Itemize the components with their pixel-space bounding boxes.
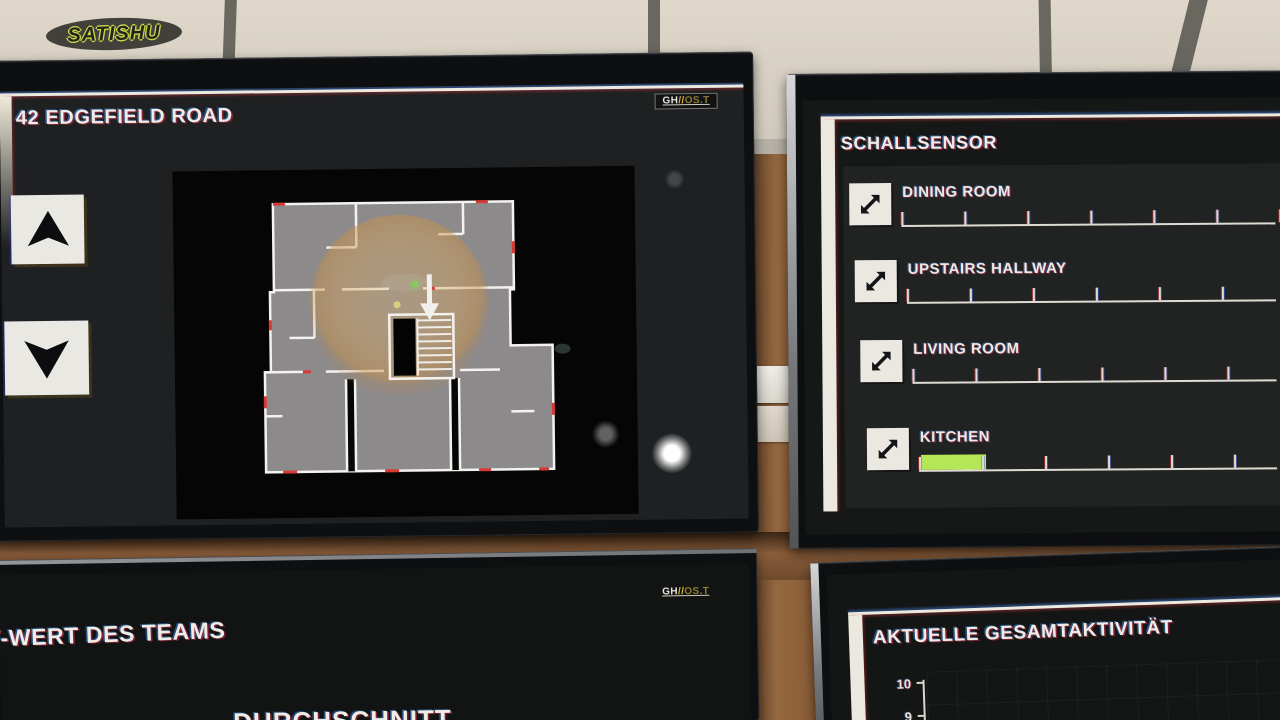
ghost-os-brand-badge: GH//OS.T (654, 93, 717, 110)
diagonal-expand-arrow-icon (861, 266, 891, 296)
light-reflection (652, 433, 692, 473)
sensor-row-dining: DINING ROOM (849, 180, 1275, 231)
ghost-os-brand-badge: GH//OS.T (662, 586, 709, 598)
activity-monitor: AKTUELLE GESAMTAKTIVITÄT 10 9 (810, 546, 1280, 720)
y-axis-tick-mark (918, 715, 925, 717)
chart-grid (926, 659, 1280, 720)
y-axis-tick-mark (917, 682, 924, 684)
sensor-room-label: KITCHEN (920, 428, 990, 445)
team-value-title: Y-WERT DES TEAMS (0, 617, 226, 653)
up-arrow-icon (18, 203, 77, 256)
map-monitor: 42 EDGEFIELD ROAD GH//OS.T (0, 51, 759, 541)
team-value-monitor: GH//OS.T Y-WERT DES TEAMS DURCHSCHNITT (0, 548, 759, 720)
team-monitor-screen: GH//OS.T Y-WERT DES TEAMS DURCHSCHNITT (0, 563, 751, 720)
panel-top-border (0, 84, 743, 96)
sensor-row-upstairs-hallway: UPSTAIRS HALLWAY (855, 257, 1276, 308)
brand-os: OS.T (684, 586, 709, 597)
monitor-edge-highlight (786, 75, 798, 549)
brand-gh: GH (662, 586, 678, 597)
sound-level-scale (912, 361, 1276, 384)
activity-monitor-screen: AKTUELLE GESAMTAKTIVITÄT 10 9 (827, 559, 1280, 720)
down-arrow-icon (15, 330, 78, 387)
panel-left-border (821, 119, 838, 511)
sensor-room-label: UPSTAIRS HALLWAY (908, 260, 1067, 278)
expand-sensor-button[interactable] (855, 260, 897, 302)
activity-title: AKTUELLE GESAMTAKTIVITÄT (873, 617, 1174, 649)
sensor-room-label: DINING ROOM (902, 183, 1011, 201)
y-axis-tick-9: 9 (904, 709, 912, 720)
sensor-row-living-room: LIVING ROOM (860, 337, 1276, 388)
panel-top-border (821, 113, 1280, 119)
map-title: 42 EDGEFIELD ROAD (16, 105, 233, 131)
brand-gh: GH (662, 95, 678, 106)
sensor-row-kitchen: KITCHEN (867, 425, 1277, 476)
panel-top-border (848, 597, 1280, 615)
brand-os: OS.T (685, 95, 710, 106)
game-scene: 42 EDGEFIELD ROAD GH//OS.T (0, 0, 1280, 720)
average-label: DURCHSCHNITT (233, 704, 452, 720)
expand-sensor-button[interactable] (849, 183, 891, 225)
sensor-room-label: LIVING ROOM (913, 340, 1019, 358)
floor-down-button[interactable] (4, 320, 89, 395)
diagonal-expand-arrow-icon (855, 189, 885, 219)
expand-sensor-button[interactable] (867, 428, 909, 470)
floor-plan-map (172, 166, 638, 520)
panel-left-border (848, 615, 867, 720)
diagonal-expand-arrow-icon (866, 346, 896, 376)
sound-sensor-title: SCHALLSENSOR (841, 132, 997, 154)
light-reflection (592, 420, 620, 448)
sound-monitor-screen: SCHALLSENSOR DINING ROOM (803, 97, 1280, 534)
sound-level-scale (901, 204, 1275, 227)
kitchen-level-bar (921, 454, 986, 469)
sound-sensor-monitor: SCHALLSENSOR DINING ROOM (786, 70, 1280, 548)
light-reflection (664, 169, 684, 189)
sound-level-scale (919, 449, 1277, 471)
diagonal-expand-arrow-icon (873, 434, 903, 464)
map-viewport (172, 166, 638, 520)
floor-up-button[interactable] (11, 195, 85, 265)
watermark-text: SATISHU (67, 21, 161, 47)
expand-sensor-button[interactable] (860, 340, 902, 382)
y-axis-tick-10: 10 (896, 676, 911, 691)
sound-level-scale (907, 281, 1276, 304)
map-monitor-screen: 42 EDGEFIELD ROAD GH//OS.T (0, 82, 749, 527)
wall-switch-box (752, 406, 794, 442)
